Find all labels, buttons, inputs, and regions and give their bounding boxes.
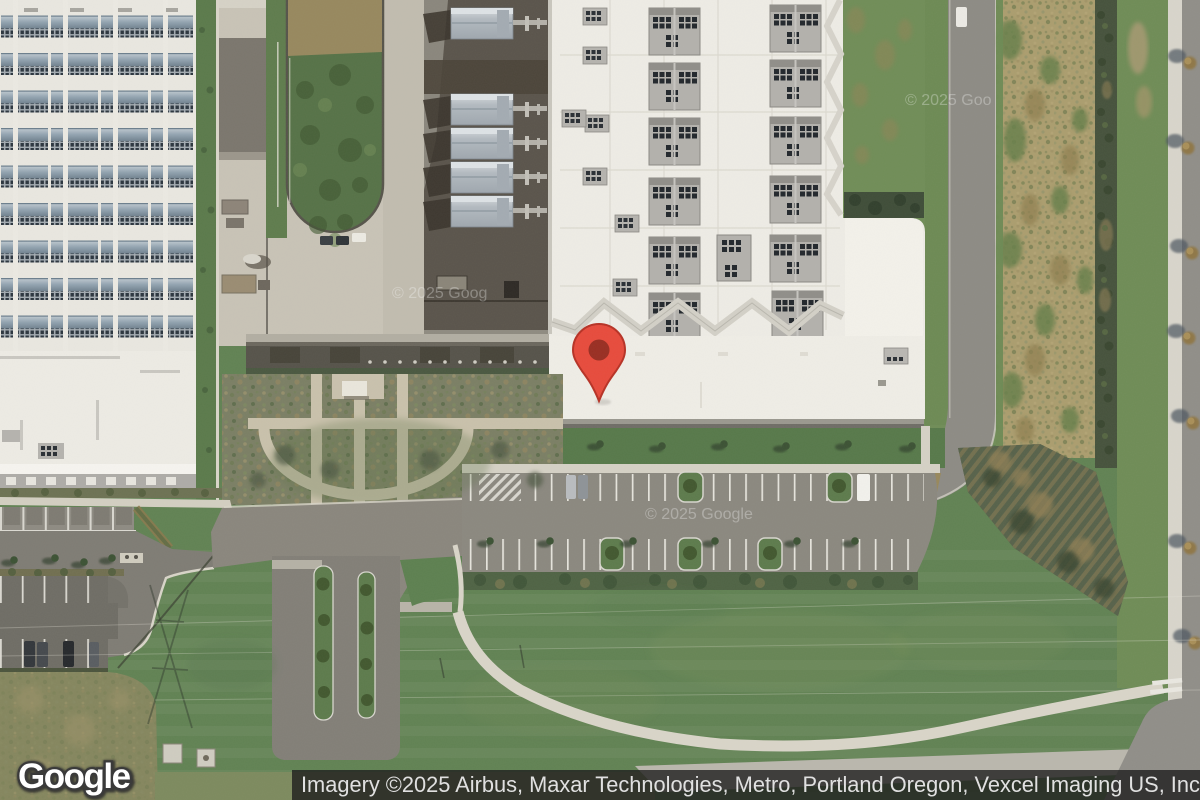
svg-text:Imagery ©2025 Airbus, Maxar Te: Imagery ©2025 Airbus, Maxar Technologies… [301, 772, 1200, 797]
svg-text:Google: Google [18, 757, 131, 796]
